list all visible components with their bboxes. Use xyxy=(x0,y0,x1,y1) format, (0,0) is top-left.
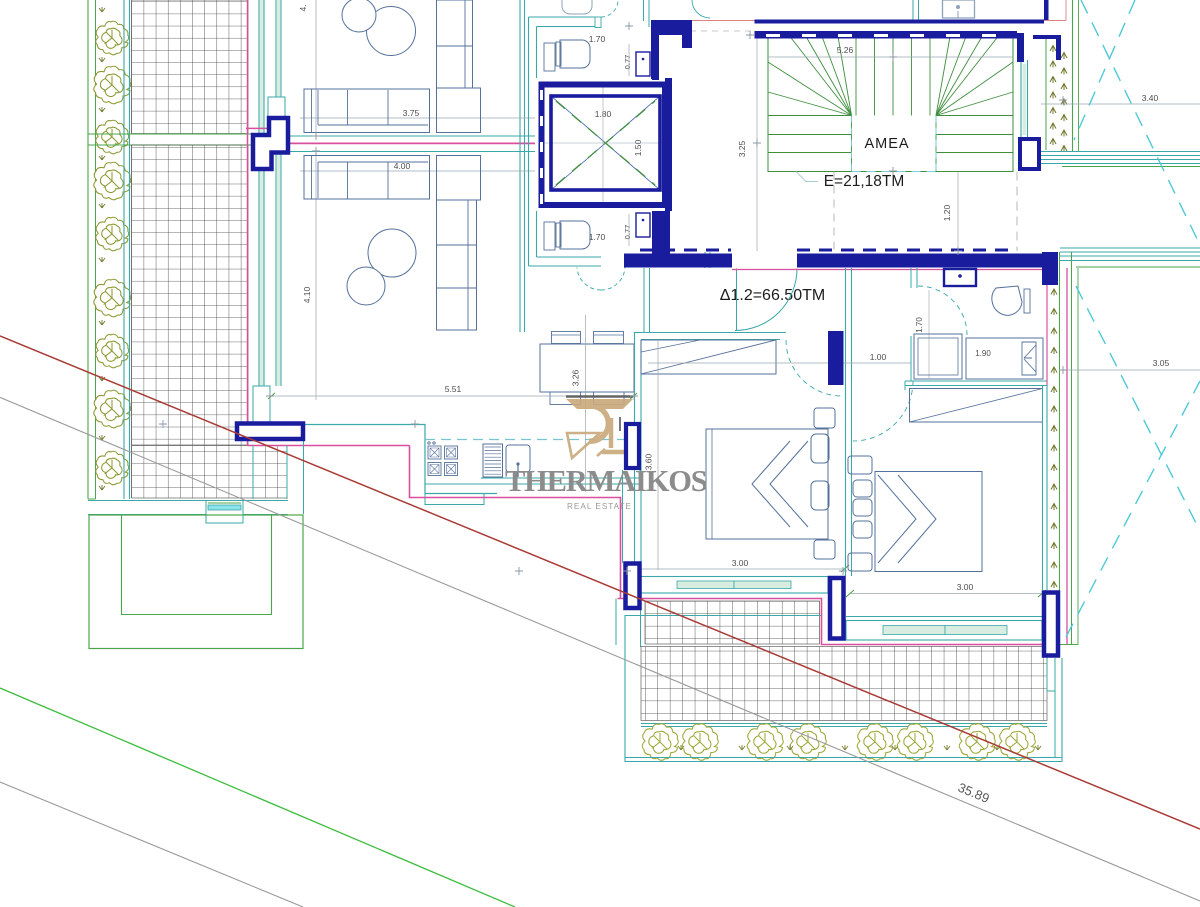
svg-text:1.70: 1.70 xyxy=(589,34,606,44)
svg-text:1.70: 1.70 xyxy=(915,317,924,333)
svg-text:E=21,18TM: E=21,18TM xyxy=(824,173,905,190)
svg-text:3.25: 3.25 xyxy=(737,140,747,157)
svg-text:Δ1.2=66.50TM: Δ1.2=66.50TM xyxy=(720,287,825,304)
svg-text:3.05: 3.05 xyxy=(1153,358,1170,368)
svg-text:4.10: 4.10 xyxy=(302,286,312,303)
svg-text:3.00: 3.00 xyxy=(957,582,974,592)
svg-text:4.: 4. xyxy=(298,4,308,11)
svg-text:1.50: 1.50 xyxy=(633,139,643,156)
svg-text:3.40: 3.40 xyxy=(1142,93,1159,103)
svg-text:AMEA: AMEA xyxy=(864,136,909,152)
svg-text:3.26: 3.26 xyxy=(571,369,581,386)
svg-text:3.75: 3.75 xyxy=(403,108,420,118)
svg-text:5.51: 5.51 xyxy=(445,384,462,394)
svg-text:REAL ESTATE: REAL ESTATE xyxy=(567,502,632,511)
svg-text:0.77: 0.77 xyxy=(623,225,632,240)
svg-text:1.20: 1.20 xyxy=(942,204,952,221)
svg-text:4.00: 4.00 xyxy=(394,161,411,171)
svg-text:5.26: 5.26 xyxy=(837,45,854,55)
svg-text:0.77: 0.77 xyxy=(623,55,632,70)
svg-text:1.70: 1.70 xyxy=(589,232,606,242)
svg-text:THERMAIKOS: THERMAIKOS xyxy=(505,464,707,498)
svg-text:3.00: 3.00 xyxy=(732,558,749,568)
svg-text:1.00: 1.00 xyxy=(870,352,887,362)
svg-text:1.90: 1.90 xyxy=(975,349,991,358)
